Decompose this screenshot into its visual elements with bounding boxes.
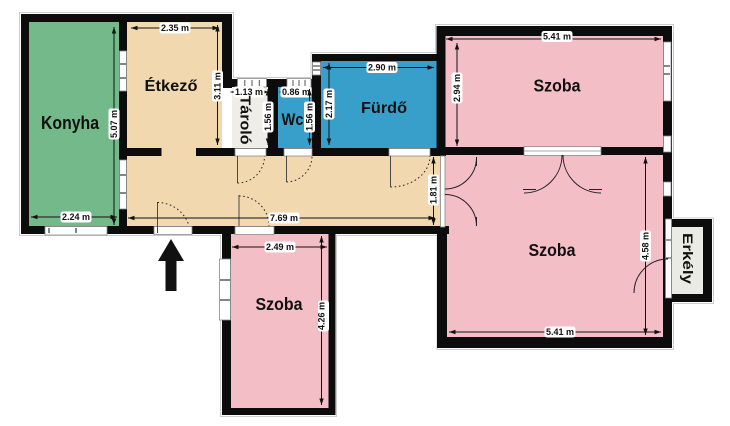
svg-text:Szoba: Szoba [256, 294, 303, 314]
svg-text:2.35 m: 2.35 m [161, 23, 189, 33]
svg-text:Wc: Wc [282, 110, 304, 129]
svg-text:Tároló: Tároló [237, 96, 254, 145]
svg-text:5.41 m: 5.41 m [546, 327, 574, 337]
svg-text:1.56 m: 1.56 m [305, 103, 315, 131]
svg-text:4.58 m: 4.58 m [641, 232, 651, 260]
svg-text:2.49 m: 2.49 m [266, 242, 294, 252]
svg-text:Szoba: Szoba [534, 76, 581, 96]
svg-text:5.07 m: 5.07 m [109, 110, 119, 138]
svg-text:Étkező: Étkező [145, 76, 198, 95]
svg-text:2.17 m: 2.17 m [324, 90, 334, 118]
svg-text:Konyha: Konyha [41, 113, 100, 133]
svg-text:Fürdő: Fürdő [361, 100, 407, 117]
svg-text:1.81 m: 1.81 m [429, 176, 439, 204]
svg-text:7.69 m: 7.69 m [270, 213, 298, 223]
svg-text:1.56 m: 1.56 m [263, 103, 273, 131]
svg-text:Szoba: Szoba [529, 240, 576, 260]
svg-text:5.41 m: 5.41 m [543, 32, 571, 42]
svg-text:2.90 m: 2.90 m [368, 63, 396, 73]
svg-text:4.26 m: 4.26 m [317, 302, 327, 330]
svg-text:2.94 m: 2.94 m [452, 74, 462, 102]
svg-text:0.86 m: 0.86 m [282, 87, 310, 97]
svg-text:Erkély: Erkély [680, 233, 695, 285]
svg-text:3.11 m: 3.11 m [213, 72, 223, 100]
svg-text:2.24 m: 2.24 m [62, 212, 90, 222]
